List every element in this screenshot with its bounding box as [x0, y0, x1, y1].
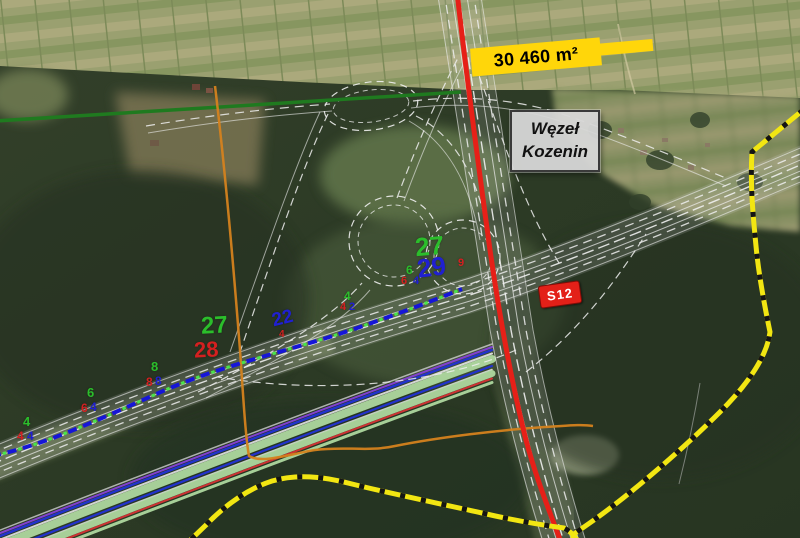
km-marker-red: 6: [81, 402, 88, 414]
km-marker-green: 6: [406, 264, 413, 276]
km-marker-red: 8: [146, 376, 153, 388]
km-marker-blue: 4: [90, 401, 97, 413]
km-marker-red: 4: [279, 330, 285, 340]
junction-name-line1: Węzeł: [531, 118, 579, 141]
km-marker-blue: 4: [413, 276, 419, 287]
aerial-imagery: [0, 0, 800, 538]
km-marker-blue: 29: [416, 252, 448, 281]
km-marker-blue: 8: [155, 375, 162, 387]
km-marker-red: 4: [17, 430, 24, 442]
km-marker-green: 4: [23, 415, 30, 428]
map-canvas: [0, 0, 800, 538]
km-marker-red: 6: [401, 276, 407, 287]
km-marker-green: 8: [151, 360, 158, 373]
km-marker-blue: 22: [270, 307, 295, 331]
area-label-text: 30 460 m²: [493, 43, 579, 71]
km-marker-red: 28: [193, 338, 219, 361]
km-marker-blue: 4: [27, 430, 34, 442]
junction-name-line2: Kozenin: [522, 141, 588, 164]
road-shield-text: S12: [546, 285, 574, 303]
junction-name-label: Węzeł Kozenin: [510, 110, 600, 172]
km-marker-red: 9: [458, 258, 464, 269]
km-marker-green: 6: [87, 386, 94, 399]
km-marker-green: 27: [200, 313, 228, 338]
km-marker-red: 4: [340, 302, 346, 313]
km-marker-blue: 2: [349, 302, 355, 313]
map-viewport[interactable]: 30 460 m² Węzeł Kozenin S12 272822427299…: [0, 0, 800, 538]
